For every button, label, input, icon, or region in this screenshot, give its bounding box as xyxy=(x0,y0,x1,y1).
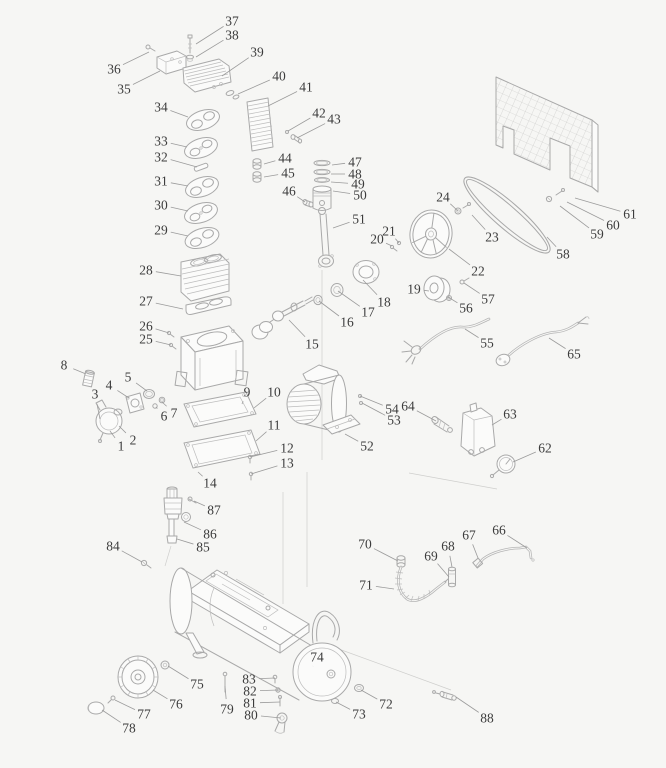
parts-diagram-page: 1234567891011121314151617181920212223242… xyxy=(0,0,666,768)
part-label-60: 60 xyxy=(606,218,620,233)
part-label-85: 85 xyxy=(196,540,210,555)
part-label-32: 32 xyxy=(154,150,168,165)
part-label-36: 36 xyxy=(107,62,121,77)
part-label-16: 16 xyxy=(340,315,354,330)
part-label-38: 38 xyxy=(225,28,239,43)
part-label-67: 67 xyxy=(462,528,476,543)
part-label-18: 18 xyxy=(377,295,391,310)
part-label-8: 8 xyxy=(61,358,68,373)
part-label-78: 78 xyxy=(122,721,136,736)
part-label-14: 14 xyxy=(203,476,217,491)
part-label-2: 2 xyxy=(130,433,137,448)
part-label-29: 29 xyxy=(154,223,168,238)
part-label-57: 57 xyxy=(481,292,495,307)
part-label-59: 59 xyxy=(590,227,604,242)
part-label-50: 50 xyxy=(353,188,367,203)
part-label-1: 1 xyxy=(118,439,125,454)
part-label-44: 44 xyxy=(278,151,292,166)
part-label-30: 30 xyxy=(154,198,168,213)
part-label-22: 22 xyxy=(471,264,485,279)
part-label-12: 12 xyxy=(280,441,294,456)
part-label-70: 70 xyxy=(358,537,372,552)
part-label-45: 45 xyxy=(281,166,295,181)
part-label-62: 62 xyxy=(538,441,552,456)
part-label-64: 64 xyxy=(401,399,415,414)
part-label-42: 42 xyxy=(312,106,326,121)
part-label-17: 17 xyxy=(361,305,375,320)
part-label-5: 5 xyxy=(125,370,132,385)
part-label-65: 65 xyxy=(567,347,581,362)
part-label-40: 40 xyxy=(272,69,286,84)
part-label-41: 41 xyxy=(299,80,313,95)
exploded-parts-diagram: 1234567891011121314151617181920212223242… xyxy=(0,0,666,768)
part-label-52: 52 xyxy=(360,439,374,454)
part-label-86: 86 xyxy=(203,527,217,542)
crankcase xyxy=(175,326,248,390)
part-label-37: 37 xyxy=(225,14,239,29)
part-label-28: 28 xyxy=(139,263,153,278)
part-label-6: 6 xyxy=(161,409,168,424)
part-label-23: 23 xyxy=(485,230,499,245)
part-label-75: 75 xyxy=(190,677,204,692)
part-label-26: 26 xyxy=(139,319,153,334)
part-label-84: 84 xyxy=(106,539,120,554)
part-label-3: 3 xyxy=(92,387,99,402)
part-label-76: 76 xyxy=(169,697,183,712)
part-label-72: 72 xyxy=(379,697,393,712)
part-label-24: 24 xyxy=(436,190,450,205)
part-label-25: 25 xyxy=(139,332,153,347)
part-label-55: 55 xyxy=(480,336,494,351)
part-label-74: 74 xyxy=(310,650,324,665)
part-label-83: 83 xyxy=(242,672,256,687)
part-label-46: 46 xyxy=(282,184,296,199)
part-label-34: 34 xyxy=(154,100,168,115)
part-label-43: 43 xyxy=(327,112,341,127)
part-label-19: 19 xyxy=(407,282,421,297)
part-label-9: 9 xyxy=(244,385,251,400)
part-label-58: 58 xyxy=(556,247,570,262)
part-label-77: 77 xyxy=(137,707,151,722)
part-label-71: 71 xyxy=(359,578,373,593)
part-label-79: 79 xyxy=(220,702,234,717)
part-label-63: 63 xyxy=(503,407,517,422)
wheel xyxy=(118,656,158,698)
part-label-69: 69 xyxy=(424,549,438,564)
part-label-54: 54 xyxy=(385,402,399,417)
part-label-68: 68 xyxy=(441,539,455,554)
part-label-35: 35 xyxy=(117,82,131,97)
part-label-61: 61 xyxy=(623,207,637,222)
part-label-73: 73 xyxy=(352,707,366,722)
part-label-4: 4 xyxy=(106,378,113,393)
bearing-cover xyxy=(353,261,379,284)
part-label-27: 27 xyxy=(139,294,153,309)
part-label-7: 7 xyxy=(171,406,178,421)
part-label-21: 21 xyxy=(382,224,396,239)
part-label-31: 31 xyxy=(154,174,168,189)
part-label-10: 10 xyxy=(267,385,281,400)
part-label-66: 66 xyxy=(492,523,506,538)
part-label-87: 87 xyxy=(207,503,221,518)
part-label-11: 11 xyxy=(268,418,281,433)
aftercooler xyxy=(247,98,273,151)
part-label-51: 51 xyxy=(352,212,366,227)
part-label-13: 13 xyxy=(280,456,294,471)
part-label-88: 88 xyxy=(480,711,494,726)
part-label-39: 39 xyxy=(250,45,264,60)
part-label-33: 33 xyxy=(154,134,168,149)
part-label-15: 15 xyxy=(305,337,319,352)
part-label-56: 56 xyxy=(459,301,473,316)
axle-cap xyxy=(88,702,104,714)
